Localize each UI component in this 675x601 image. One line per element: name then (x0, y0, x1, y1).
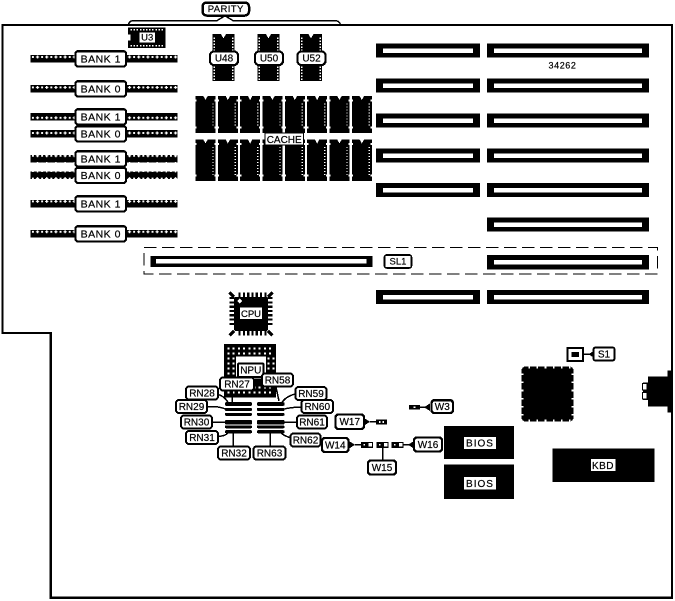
svg-text:U48: U48 (215, 54, 234, 65)
svg-text:W14: W14 (325, 440, 346, 451)
svg-text:W16: W16 (418, 440, 439, 451)
svg-text:BANK 0: BANK 0 (81, 128, 121, 140)
svg-text:34262: 34262 (548, 61, 576, 71)
svg-text:PARITY: PARITY (208, 4, 244, 15)
svg-text:W15: W15 (372, 463, 393, 474)
svg-text:U52: U52 (302, 54, 321, 65)
svg-text:BANK 1: BANK 1 (81, 53, 121, 65)
svg-text:U3: U3 (141, 33, 153, 44)
svg-text:BANK 1: BANK 1 (81, 111, 121, 123)
svg-text:U50: U50 (260, 54, 279, 65)
svg-text:RN31: RN31 (189, 433, 215, 444)
svg-text:BIOS: BIOS (466, 479, 494, 490)
svg-text:W3: W3 (435, 402, 450, 413)
svg-text:BANK 0: BANK 0 (81, 228, 121, 240)
svg-text:SL1: SL1 (390, 257, 407, 268)
svg-text:RN27: RN27 (224, 379, 250, 390)
svg-text:KBD: KBD (592, 461, 614, 472)
svg-text:S1: S1 (598, 349, 611, 360)
svg-text:RN61: RN61 (299, 417, 325, 428)
svg-text:CACHE: CACHE (267, 135, 302, 146)
svg-text:BANK 1: BANK 1 (81, 198, 121, 210)
svg-text:RN29: RN29 (179, 402, 205, 413)
svg-text:BIOS: BIOS (466, 439, 494, 450)
svg-text:RN59: RN59 (298, 389, 324, 400)
svg-text:W17: W17 (339, 417, 360, 428)
svg-text:BANK 0: BANK 0 (81, 170, 121, 182)
svg-text:RN30: RN30 (184, 417, 210, 428)
svg-text:BANK 1: BANK 1 (81, 153, 121, 165)
svg-text:RN62: RN62 (293, 435, 319, 446)
svg-text:RN58: RN58 (265, 375, 291, 386)
svg-text:NPU: NPU (240, 366, 261, 377)
svg-text:BANK 0: BANK 0 (81, 83, 121, 95)
svg-text:RN32: RN32 (221, 448, 247, 459)
svg-text:RN28: RN28 (189, 388, 215, 399)
svg-text:CPU: CPU (241, 309, 261, 320)
svg-text:RN63: RN63 (257, 448, 283, 459)
svg-text:RN60: RN60 (304, 402, 330, 413)
